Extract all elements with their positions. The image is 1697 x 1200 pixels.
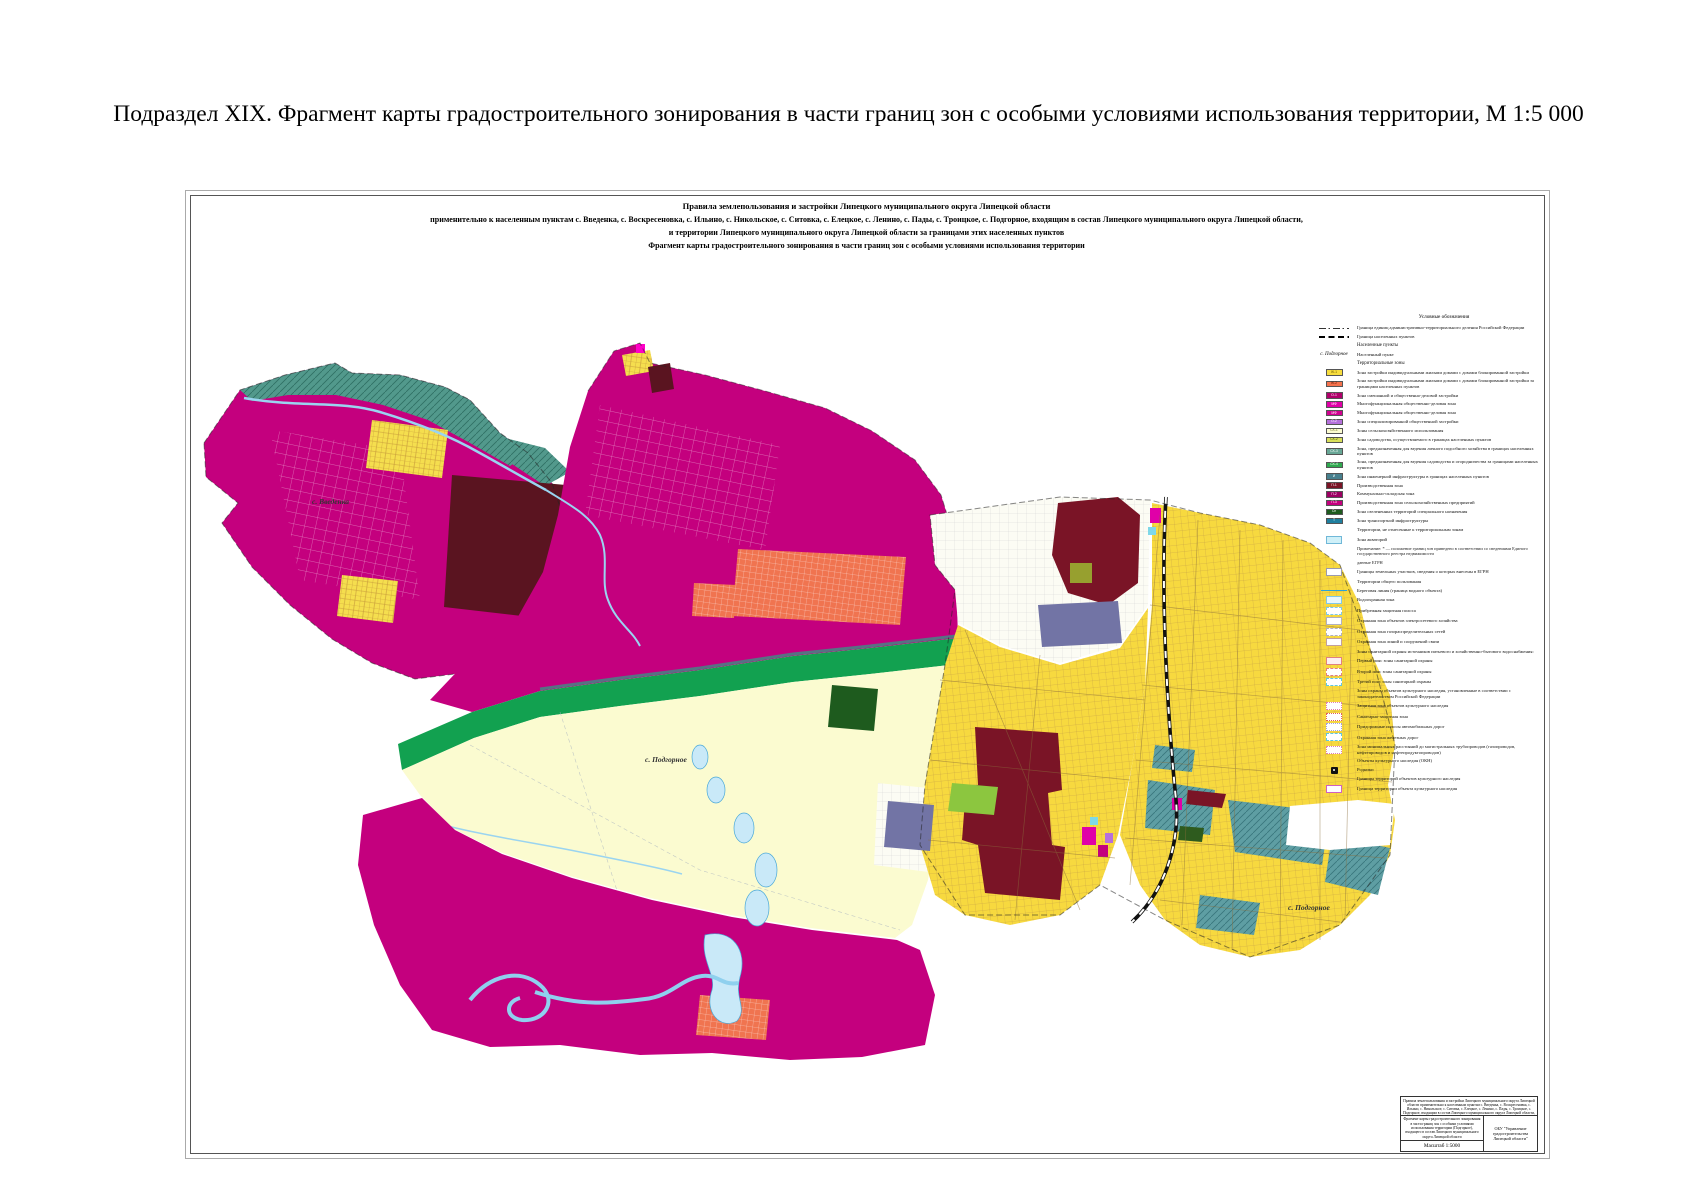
- legend-item: Граница территории объекта культурного н…: [1316, 785, 1544, 793]
- legend-item: Защитная зона объектов культурного насле…: [1316, 702, 1544, 710]
- legend-item-label: Охранная зона линий и сооружений связи: [1357, 639, 1544, 645]
- legend-item-label: Производственная зона сельскохозяйственн…: [1357, 500, 1544, 506]
- map-header-line2: применительно к населенным пунктам с. Вв…: [190, 213, 1543, 226]
- settlement-label-right: с. Подгорное: [1288, 903, 1330, 912]
- title-block-scale: Масштаб 1:5000: [1401, 1141, 1483, 1151]
- legend-item-label: Береговая линия (граница водного объекта…: [1357, 588, 1544, 594]
- legend-item-label: Многофункциональная общественно-деловая …: [1357, 410, 1544, 416]
- legend-item-label: Третий пояс зоны санитарной охраны: [1357, 679, 1544, 685]
- zouit-box-icon: [1316, 628, 1352, 636]
- legend-item-label: Охранная зона газораспределительных сете…: [1357, 629, 1544, 635]
- legend-item-label: Зона садоводства, осуществляемого в гран…: [1357, 437, 1544, 443]
- zone-cyan-bit-1: [1090, 817, 1098, 825]
- legend-item-label: Коммунально-складская зона: [1357, 491, 1544, 497]
- legend-item-label: Зона минимальных расстояний до магистрал…: [1357, 744, 1544, 755]
- zone-swatch-icon: СХ-2: [1316, 437, 1352, 444]
- shoreline-icon: [1316, 590, 1352, 591]
- zone-magenta-bit-1: [1082, 827, 1096, 845]
- legend-item-label: Граница единиц административно-территори…: [1357, 325, 1544, 331]
- legend-item-label: Охранная зона объектов электросетевого х…: [1357, 618, 1544, 624]
- zone-swatch-icon: П-2: [1316, 491, 1352, 498]
- legend-item-label: Защитная зона объектов культурного насле…: [1357, 703, 1544, 709]
- zouit-box-icon: [1316, 785, 1352, 793]
- zone-slate-purple-2: [884, 801, 934, 851]
- legend-item: Третий пояс зоны санитарной охраны: [1316, 678, 1544, 686]
- zouit-box-icon: [1316, 678, 1352, 686]
- zouit-box-icon: [1316, 568, 1352, 576]
- legend-item-label: Территориальные зоны: [1357, 361, 1544, 367]
- unzoned-white-blob: [1286, 800, 1395, 850]
- legend-item: Граница населенных пунктов: [1316, 334, 1544, 341]
- legend-item-label: Зона застройки индивидуальными жилыми до…: [1357, 378, 1544, 389]
- zouit-box-icon: [1316, 713, 1352, 721]
- zone-swatch-icon: Ж-1: [1316, 369, 1352, 376]
- legend-item-label: Родники: [1357, 767, 1544, 773]
- legend-item-label: Территории, не отнесенные к территориаль…: [1357, 527, 1544, 533]
- legend-item-label: Населенный пункт: [1357, 352, 1544, 358]
- legend-item: ИЗона инженерной инфраструктуры в границ…: [1316, 473, 1544, 480]
- admin-boundary-line-icon: [1316, 328, 1352, 329]
- legend-item: Зоны санитарной охраны источников питьев…: [1316, 648, 1544, 655]
- pond-4: [755, 853, 777, 887]
- zone-orange-parcels-large: [732, 549, 906, 625]
- zone-slate-purple-1: [1038, 601, 1122, 647]
- zone-orange-parcels-small: [692, 583, 736, 618]
- zone-dark-green-east: [1178, 826, 1204, 842]
- zone-swatch-icon: О-1: [1316, 392, 1352, 399]
- legend-item-label: Водоохранная зона: [1357, 597, 1544, 603]
- legend-item-label: Придорожные полосы автомобильных дорог: [1357, 724, 1544, 730]
- legend-item-label: Многофункциональная общественно-деловая …: [1357, 401, 1544, 407]
- legend-item: Примечание: * — положение границ зон при…: [1316, 546, 1544, 557]
- legend-item-label: Границы территорий объектов культурного …: [1357, 776, 1544, 782]
- map-header-line4: Фрагмент карты градостроительного зониро…: [190, 239, 1543, 252]
- legend-item-label: Граница населенных пунктов: [1357, 334, 1544, 340]
- legend-item-label: Первый пояс зоны санитарной охраны: [1357, 658, 1544, 664]
- legend-item-label: Зона акваторий: [1357, 537, 1544, 543]
- zone-swatch-icon: СХ-3: [1316, 448, 1352, 455]
- zone-violet-bit: [1105, 833, 1113, 843]
- zouit-box-icon: [1316, 657, 1352, 665]
- zone-yellow-green-parcel: [948, 783, 998, 815]
- zone-magenta-bit-2: [1098, 845, 1108, 857]
- legend-item: Прибрежная защитная полоса: [1316, 607, 1544, 615]
- settlement-boundary-line-icon: [1316, 336, 1352, 338]
- legend-item: Береговая линия (граница водного объекта…: [1316, 587, 1544, 594]
- settlement-label-upper-left: с. Введенка: [312, 497, 349, 506]
- legend-item: Зоны охраны объектов культурного наследи…: [1316, 688, 1544, 699]
- legend-item-label: Населенные пункты: [1357, 343, 1544, 349]
- zone-swatch-icon: О-2: [1316, 419, 1352, 426]
- legend: Условные обозначения Граница единиц адми…: [1316, 314, 1544, 793]
- pond-5: [745, 890, 769, 926]
- legend-item: Зона минимальных расстояний до магистрал…: [1316, 744, 1544, 755]
- zone-yellow-parcel-1: [366, 420, 448, 478]
- legend-item: Первый пояс зоны санитарной охраны: [1316, 657, 1544, 665]
- legend-item-label: Зона смешанной и общественно-деловой зас…: [1357, 393, 1544, 399]
- legend-item: Санитарно-защитная зона: [1316, 713, 1544, 721]
- legend-item: Объекты культурного наследия (ОКН): [1316, 758, 1544, 765]
- zone-swatch-icon: Т: [1316, 518, 1352, 525]
- legend-item-label: Зона, предназначенная для ведения садово…: [1357, 459, 1544, 470]
- legend-item: О-1Зона смешанной и общественно-деловой …: [1316, 392, 1544, 399]
- legend-item-label: Объекты культурного наследия (ОКН): [1357, 758, 1544, 764]
- legend-item: Второй пояс зоны санитарной охраны: [1316, 668, 1544, 676]
- zouit-box-icon: [1316, 733, 1352, 741]
- settlement-label-center: с. Подгорное: [645, 755, 687, 764]
- zone-olive-square: [1070, 563, 1092, 583]
- legend-item-label: Зона, предназначенная для ведения личног…: [1357, 446, 1544, 457]
- legend-item-label: Граница территории объекта культурного н…: [1357, 786, 1544, 792]
- spring-icon: [1316, 767, 1352, 774]
- legend-item: Границы территорий объектов культурного …: [1316, 776, 1544, 783]
- legend-item: Зона акваторий: [1316, 536, 1544, 544]
- legend-item: Охранная зона объектов электросетевого х…: [1316, 617, 1544, 625]
- zouit-box-icon: [1316, 596, 1352, 604]
- legend-item-label: Охранная зона железных дорог: [1357, 735, 1544, 741]
- zone-swatch-icon: СХ-4: [1316, 462, 1352, 469]
- legend-item: МФМногофункциональная общественно-делова…: [1316, 410, 1544, 417]
- legend-item: СХ-4Зона, предназначенная для ведения са…: [1316, 459, 1544, 470]
- legend-item: О-2Зона специализированной общественной …: [1316, 419, 1544, 426]
- zone-swatch-icon: МФ: [1316, 401, 1352, 408]
- legend-item-label: Зона транспортной инфраструктуры: [1357, 518, 1544, 524]
- legend-items: Граница единиц административно-территори…: [1316, 325, 1544, 793]
- legend-item-label: Зона озелененных территорий специального…: [1357, 509, 1544, 515]
- legend-item-label: Санитарно-защитная зона: [1357, 714, 1544, 720]
- zouit-box-icon: [1316, 668, 1352, 676]
- legend-item: ТЗона транспортной инфраструктуры: [1316, 518, 1544, 525]
- zouit-box-icon: [1316, 746, 1352, 754]
- page: { "page": { "title": "Подраздел XIX. Фра…: [0, 0, 1697, 1200]
- legend-item: данные ЕГРН: [1316, 559, 1544, 566]
- legend-item: П-2Коммунально-складская зона: [1316, 491, 1544, 498]
- legend-item: СХ-2Зона садоводства, осуществляемого в …: [1316, 437, 1544, 444]
- legend-item: СХ-3Зона, предназначенная для ведения ли…: [1316, 446, 1544, 457]
- map-inner-header: Правила землепользования и застройки Лип…: [190, 200, 1543, 252]
- legend-item-label: Зона инженерной инфраструктуры в граница…: [1357, 474, 1544, 480]
- legend-item-label: Зоны сельскохозяйственного использования: [1357, 428, 1544, 434]
- legend-item-label: Территории общего пользования: [1357, 579, 1544, 585]
- pond-1: [692, 745, 708, 769]
- legend-item-label: Примечание: * — положение границ зон при…: [1357, 546, 1544, 557]
- legend-item-label: данные ЕГРН: [1357, 560, 1544, 566]
- zouit-box-icon: [1316, 702, 1352, 710]
- legend-item: Охранная зона железных дорог: [1316, 733, 1544, 741]
- zone-swatch-icon: П-1: [1316, 482, 1352, 489]
- zone-swatch-icon: Ж-2: [1316, 381, 1352, 388]
- legend-item: Границы земельных участков, сведения о к…: [1316, 568, 1544, 576]
- legend-item: Охранная зона линий и сооружений связи: [1316, 638, 1544, 646]
- zouit-box-icon: [1316, 536, 1352, 544]
- legend-item: СХ-1Зоны сельскохозяйственного использов…: [1316, 428, 1544, 435]
- zone-dark-green-square: [828, 685, 878, 731]
- pond-3: [734, 813, 754, 843]
- zone-swatch-icon: П-3: [1316, 500, 1352, 507]
- legend-item: СпЗона озелененных территорий специально…: [1316, 509, 1544, 516]
- legend-item: П-1Производственная зона: [1316, 482, 1544, 489]
- legend-item-label: Производственная зона: [1357, 483, 1544, 489]
- legend-item: П-3Производственная зона сельскохозяйств…: [1316, 500, 1544, 507]
- zone-swatch-icon: Сп: [1316, 509, 1352, 516]
- title-block-doc-title: Фрагмент карты градостроительного зониро…: [1401, 1116, 1483, 1141]
- legend-item: Населенные пункты: [1316, 343, 1544, 350]
- legend-item: Ж-1Зона застройки индивидуальными жилыми…: [1316, 369, 1544, 376]
- title-block-left-column: Фрагмент карты градостроительного зониро…: [1401, 1116, 1484, 1151]
- legend-item-label: Прибрежная защитная полоса: [1357, 608, 1544, 614]
- legend-item-label: Зоны санитарной охраны источников питьев…: [1357, 649, 1544, 655]
- legend-item: Территориальные зоны: [1316, 361, 1544, 368]
- zouit-box-icon: [1316, 723, 1352, 731]
- zone-magenta-bright-dot: [636, 344, 645, 353]
- settlement-name-sample: с. Подгорное: [1316, 352, 1352, 357]
- legend-item: Ж-2Зона застройки индивидуальными жилыми…: [1316, 378, 1544, 389]
- zone-swatch-icon: И: [1316, 473, 1352, 480]
- legend-item: МФМногофункциональная общественно-делова…: [1316, 401, 1544, 408]
- legend-item: Придорожные полосы автомобильных дорог: [1316, 723, 1544, 731]
- legend-item: Водоохранная зона: [1316, 596, 1544, 604]
- zone-cyan-bit-2: [1148, 527, 1156, 535]
- legend-item-label: Зона застройки индивидуальными жилыми до…: [1357, 370, 1544, 376]
- pond-2: [707, 777, 725, 803]
- legend-item: Родники: [1316, 767, 1544, 774]
- legend-item: Охранная зона газораспределительных сете…: [1316, 628, 1544, 636]
- legend-item: Территории общего пользования: [1316, 579, 1544, 586]
- title-block: Правила землепользования и застройки Лип…: [1400, 1096, 1538, 1152]
- zone-swatch-icon: МФ: [1316, 410, 1352, 417]
- title-block-org: ОБУ "Управление градостроительства Липец…: [1484, 1116, 1537, 1151]
- legend-item-label: Зоны охраны объектов культурного наследи…: [1357, 688, 1544, 699]
- legend-item: Граница единиц административно-территори…: [1316, 325, 1544, 332]
- legend-item-label: Зона специализированной общественной зас…: [1357, 419, 1544, 425]
- title-block-middle: Фрагмент карты градостроительного зониро…: [1401, 1116, 1537, 1151]
- zone-yellow-parcel-2: [337, 575, 398, 623]
- legend-item: с. ПодгорноеНаселенный пункт: [1316, 352, 1544, 359]
- title-block-project: Правила землепользования и застройки Лип…: [1401, 1097, 1537, 1116]
- legend-item-label: Границы земельных участков, сведения о к…: [1357, 569, 1544, 575]
- zouit-box-icon: [1316, 607, 1352, 615]
- legend-title: Условные обозначения: [1316, 314, 1544, 320]
- map-header-line1: Правила землепользования и застройки Лип…: [190, 200, 1543, 213]
- legend-item: Территории, не отнесенные к территориаль…: [1316, 527, 1544, 534]
- legend-item-label: Второй пояс зоны санитарной охраны: [1357, 669, 1544, 675]
- zouit-box-icon: [1316, 638, 1352, 646]
- zone-swatch-icon: СХ-1: [1316, 428, 1352, 435]
- zouit-box-icon: [1316, 617, 1352, 625]
- map-header-line3: и территории Липецкого муниципального ок…: [190, 226, 1543, 239]
